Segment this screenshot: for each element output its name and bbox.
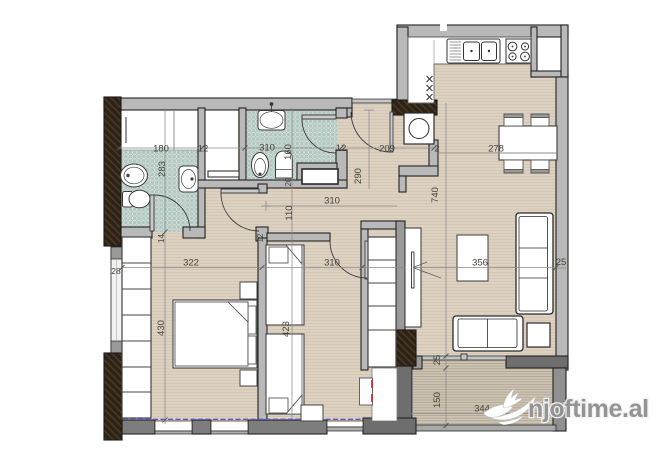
svg-text:209: 209 <box>379 144 395 155</box>
svg-text:25: 25 <box>556 257 567 268</box>
svg-text:423: 423 <box>281 321 292 337</box>
svg-text:310: 310 <box>324 258 340 269</box>
svg-text:740: 740 <box>430 187 441 203</box>
svg-text:28: 28 <box>111 266 121 276</box>
svg-text:310: 310 <box>259 143 275 154</box>
svg-text:14: 14 <box>157 234 166 243</box>
svg-text:12: 12 <box>198 144 209 155</box>
svg-text:12: 12 <box>256 233 265 242</box>
svg-text:110: 110 <box>284 205 295 220</box>
svg-text:njoftime.al: njoftime.al <box>528 395 649 423</box>
svg-text:322: 322 <box>183 258 199 269</box>
svg-text:290: 290 <box>353 168 364 184</box>
svg-text:12: 12 <box>336 143 347 154</box>
svg-text:278: 278 <box>488 144 504 155</box>
svg-text:160: 160 <box>283 144 294 160</box>
svg-text:150: 150 <box>432 392 443 408</box>
svg-text:430: 430 <box>156 320 167 336</box>
svg-text:2: 2 <box>434 144 439 155</box>
svg-text:283: 283 <box>157 161 168 177</box>
svg-text:180: 180 <box>153 144 169 155</box>
svg-text:310: 310 <box>324 196 340 207</box>
svg-text:20: 20 <box>284 177 293 186</box>
svg-text:356: 356 <box>472 258 488 269</box>
svg-text:25: 25 <box>432 355 443 366</box>
